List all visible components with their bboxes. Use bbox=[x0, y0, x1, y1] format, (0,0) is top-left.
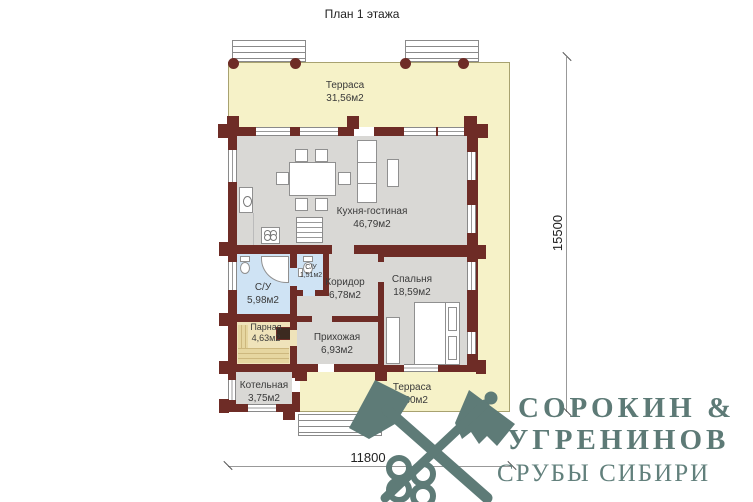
room-name: Парная bbox=[240, 322, 292, 333]
window bbox=[228, 150, 237, 182]
terrace-post bbox=[228, 58, 239, 69]
window bbox=[467, 205, 476, 233]
log-joint bbox=[476, 245, 486, 259]
door-kitchen-corridor bbox=[332, 245, 354, 254]
room-name: Котельная bbox=[236, 380, 292, 393]
log-joint bbox=[219, 361, 229, 374]
window bbox=[256, 127, 290, 136]
log-joint bbox=[464, 116, 477, 129]
terrace-post bbox=[458, 58, 469, 69]
pillow bbox=[448, 307, 457, 331]
room-name: Спальня bbox=[374, 274, 450, 287]
coffee-table bbox=[387, 159, 399, 187]
room-label-sauna: Парная 4,63м2 bbox=[240, 322, 292, 345]
log-joint bbox=[219, 242, 229, 256]
log-joint bbox=[283, 411, 295, 420]
chair bbox=[295, 149, 308, 162]
logo-text-line3: СРУБЫ СИБИРИ bbox=[497, 460, 710, 488]
wardrobe bbox=[386, 317, 400, 364]
window bbox=[404, 127, 436, 136]
room-name: С/У bbox=[235, 282, 291, 295]
room-area: 46,79м2 bbox=[319, 219, 425, 232]
dimension-height-value: 15500 bbox=[550, 203, 566, 263]
log-joint bbox=[227, 116, 239, 129]
room-label-bathroom-large: С/У 5,98м2 bbox=[235, 282, 291, 307]
window bbox=[467, 152, 476, 180]
chair bbox=[295, 198, 308, 211]
room-area: 31,56м2 bbox=[297, 93, 393, 106]
window bbox=[467, 262, 476, 290]
room-area: 18,59м2 bbox=[374, 287, 450, 300]
room-area: 3,75м2 bbox=[236, 393, 292, 406]
window bbox=[438, 127, 464, 136]
log-joint bbox=[347, 116, 359, 129]
sofa bbox=[357, 140, 377, 203]
kitchen-counter-edge bbox=[253, 213, 254, 245]
room-label-boiler: Котельная 3,75м2 bbox=[236, 380, 292, 405]
window bbox=[228, 380, 236, 400]
room-name: Терраса bbox=[297, 80, 393, 93]
dimension-line-vertical bbox=[566, 57, 567, 412]
chair bbox=[276, 172, 289, 185]
terrace-post bbox=[400, 58, 411, 69]
room-area: 6,93м2 bbox=[300, 345, 374, 358]
room-area: 4,63м2 bbox=[240, 333, 292, 344]
floor-plan-page: План 1 этажа bbox=[0, 0, 753, 502]
room-area: 6,78м2 bbox=[308, 290, 382, 303]
dining-table bbox=[289, 162, 336, 196]
door-corridor-hallway bbox=[312, 316, 332, 322]
window bbox=[300, 127, 338, 136]
page-title: План 1 этажа bbox=[297, 7, 427, 21]
logo-text-line1: СОРОКИН & bbox=[518, 392, 735, 425]
logo-text-line2: УГРЕНИНОВ bbox=[507, 424, 729, 457]
door-entrance bbox=[318, 364, 334, 372]
window bbox=[248, 404, 276, 412]
terrace-post bbox=[290, 58, 301, 69]
log-joint bbox=[219, 313, 229, 326]
room-name: Прихожая bbox=[300, 332, 374, 345]
log-joint bbox=[219, 399, 229, 413]
room-name: Коридор bbox=[308, 277, 382, 290]
toilet bbox=[240, 262, 250, 274]
chair bbox=[315, 149, 328, 162]
kitchen-stove bbox=[261, 227, 280, 244]
room-label-bedroom: Спальня 18,59м2 bbox=[374, 274, 450, 299]
chair bbox=[338, 172, 351, 185]
window bbox=[467, 332, 476, 354]
room-name: Кухня-гостиная bbox=[319, 206, 425, 219]
dimension-tick bbox=[562, 52, 571, 61]
log-joint bbox=[295, 371, 307, 381]
pillow bbox=[448, 336, 457, 360]
room-name: С/У bbox=[294, 264, 328, 272]
room-area: 5,98м2 bbox=[235, 295, 291, 308]
room-label-hallway: Прихожая 6,93м2 bbox=[300, 332, 374, 357]
top-steps-right bbox=[405, 40, 479, 62]
kitchen-sink bbox=[239, 187, 253, 213]
sauna-bench bbox=[238, 348, 289, 363]
room-label-kitchen-living: Кухня-гостиная 46,79м2 bbox=[319, 206, 425, 231]
room-label-corridor: Коридор 6,78м2 bbox=[308, 277, 382, 302]
log-joint bbox=[476, 124, 488, 138]
room-label-terrace-top: Терраса 31,56м2 bbox=[297, 80, 393, 105]
